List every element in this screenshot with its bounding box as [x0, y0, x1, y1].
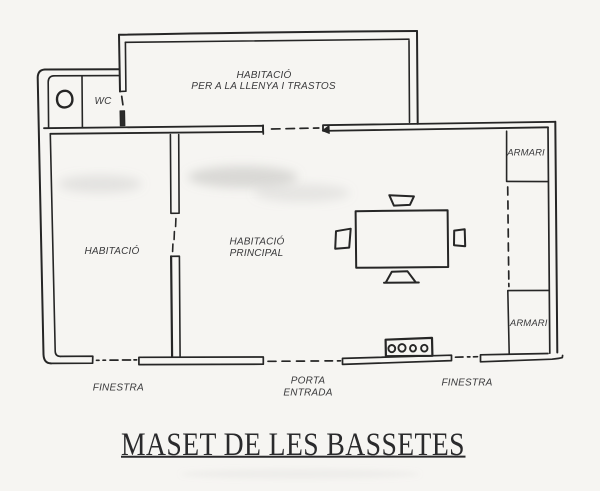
svg-text:ENTRADA: ENTRADA: [283, 388, 332, 399]
svg-text:HABITACIÓ: HABITACIÓ: [230, 235, 285, 248]
svg-text:PER A LA LLENYA I TRASTOS: PER A LA LLENYA I TRASTOS: [191, 81, 336, 92]
svg-text:PORTA: PORTA: [291, 376, 326, 387]
svg-text:ARMARI: ARMARI: [509, 318, 548, 329]
svg-text:PRINCIPAL: PRINCIPAL: [230, 248, 284, 259]
svg-text:WC: WC: [94, 96, 112, 107]
svg-text:FINESTRA: FINESTRA: [441, 378, 492, 389]
svg-text:FINESTRA: FINESTRA: [93, 383, 144, 394]
svg-text:HABITACIÓ: HABITACIÓ: [85, 244, 140, 257]
svg-text:ARMARI: ARMARI: [506, 147, 545, 158]
svg-text:HABITACIÓ: HABITACIÓ: [237, 68, 292, 81]
